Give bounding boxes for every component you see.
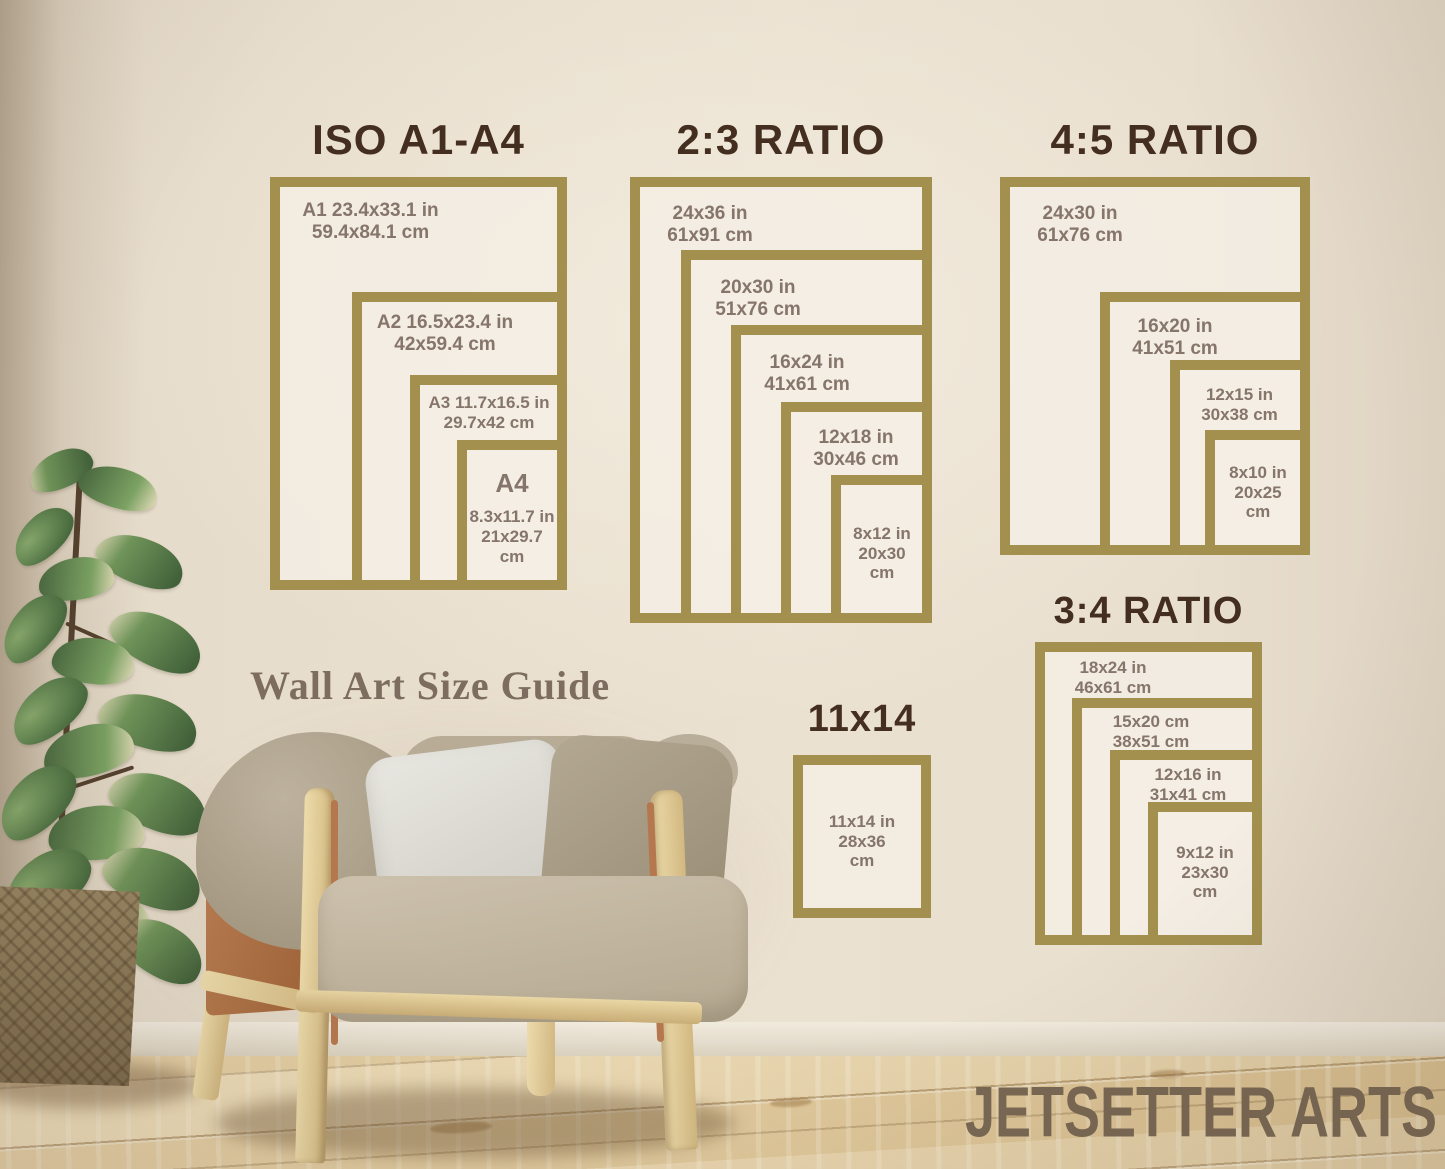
size-line: 16x20 in — [1115, 316, 1235, 338]
section-title-iso: ISO A1-A4 — [270, 116, 567, 164]
guide-heading: Wall Art Size Guide — [250, 662, 610, 709]
size-line: 61x91 cm — [650, 225, 770, 247]
size-label-11x14: 11x14 in 28x36 cm — [800, 812, 924, 871]
section-title-3-4: 3:4 RATIO — [1035, 590, 1262, 633]
plant-basket — [0, 886, 140, 1086]
size-line: 16x24 in — [747, 352, 867, 374]
size-line: 30x46 cm — [796, 449, 916, 471]
size-line: 28x36 — [800, 832, 924, 852]
size-line: 8x12 in — [838, 524, 926, 544]
size-label-8x10: 8x10 in 20x25 cm — [1212, 463, 1304, 522]
size-line: 12x16 in — [1127, 765, 1249, 785]
size-line: 41x61 cm — [747, 374, 867, 396]
size-label-24x30: 24x30 in 61x76 cm — [1020, 203, 1140, 247]
size-label-15x20: 15x20 cm 38x51 cm — [1090, 712, 1212, 751]
size-line: 11x14 in — [800, 812, 924, 832]
size-label-16x20: 16x20 in 41x51 cm — [1115, 316, 1235, 360]
size-label-8x12: 8x12 in 20x30 cm — [838, 524, 926, 583]
size-line: A1 23.4x33.1 in — [283, 200, 458, 222]
size-line: 20x30 in — [698, 277, 818, 299]
size-line: 61x76 cm — [1020, 225, 1140, 247]
size-line: cm — [800, 851, 924, 871]
section-title-4-5: 4:5 RATIO — [1000, 116, 1310, 164]
size-line: 30x38 cm — [1182, 405, 1297, 425]
size-label-a1: A1 23.4x33.1 in 59.4x84.1 cm — [283, 200, 458, 244]
size-line: cm — [838, 563, 926, 583]
size-line: 21x29.7 — [459, 527, 565, 547]
size-line: 59.4x84.1 cm — [283, 222, 458, 244]
size-label-18x24: 18x24 in 46x61 cm — [1052, 658, 1174, 697]
size-label-12x16: 12x16 in 31x41 cm — [1127, 765, 1249, 804]
size-line: cm — [459, 547, 565, 567]
size-label-20x30: 20x30 in 51x76 cm — [698, 277, 818, 321]
size-line: 20x30 — [838, 544, 926, 564]
size-line: 29.7x42 cm — [416, 413, 562, 433]
size-line: cm — [1154, 882, 1256, 902]
size-label-24x36: 24x36 in 61x91 cm — [650, 203, 770, 247]
section-title-2-3: 2:3 RATIO — [630, 116, 932, 164]
chair-shadow — [215, 1088, 735, 1158]
size-line: 20x25 — [1212, 483, 1304, 503]
size-label-a3: A3 11.7x16.5 in 29.7x42 cm — [416, 393, 562, 432]
size-line: A3 11.7x16.5 in — [416, 393, 562, 413]
size-label-a2: A2 16.5x23.4 in 42x59.4 cm — [365, 312, 525, 356]
size-label-9x12: 9x12 in 23x30 cm — [1154, 843, 1256, 902]
size-label-16x24: 16x24 in 41x61 cm — [747, 352, 867, 396]
size-line: 12x18 in — [796, 427, 916, 449]
size-line: 46x61 cm — [1052, 678, 1174, 698]
size-line: A4 — [459, 468, 565, 498]
size-label-12x18: 12x18 in 30x46 cm — [796, 427, 916, 471]
size-line: 9x12 in — [1154, 843, 1256, 863]
size-line: 8.3x11.7 in — [459, 507, 565, 527]
size-line: 18x24 in — [1052, 658, 1174, 678]
size-line: 51x76 cm — [698, 299, 818, 321]
section-title-11x14: 11x14 — [793, 698, 931, 741]
size-line: 42x59.4 cm — [365, 334, 525, 356]
size-line: 24x30 in — [1020, 203, 1140, 225]
size-line: 8x10 in — [1212, 463, 1304, 483]
size-line: 24x36 in — [650, 203, 770, 225]
brand-watermark: JETSETTER ARTS — [965, 1072, 1437, 1154]
size-line: 23x30 — [1154, 863, 1256, 883]
size-line: A2 16.5x23.4 in — [365, 312, 525, 334]
size-line: 41x51 cm — [1115, 338, 1235, 360]
size-label-12x15: 12x15 in 30x38 cm — [1182, 385, 1297, 424]
size-line: 12x15 in — [1182, 385, 1297, 405]
size-line: 15x20 cm — [1090, 712, 1212, 732]
size-line: 38x51 cm — [1090, 732, 1212, 752]
size-label-a4: A4 8.3x11.7 in 21x29.7 cm — [459, 468, 565, 566]
size-line: cm — [1212, 502, 1304, 522]
size-line: 31x41 cm — [1127, 785, 1249, 805]
room-scene: ISO A1-A4 A1 23.4x33.1 in 59.4x84.1 cm A… — [0, 0, 1445, 1169]
